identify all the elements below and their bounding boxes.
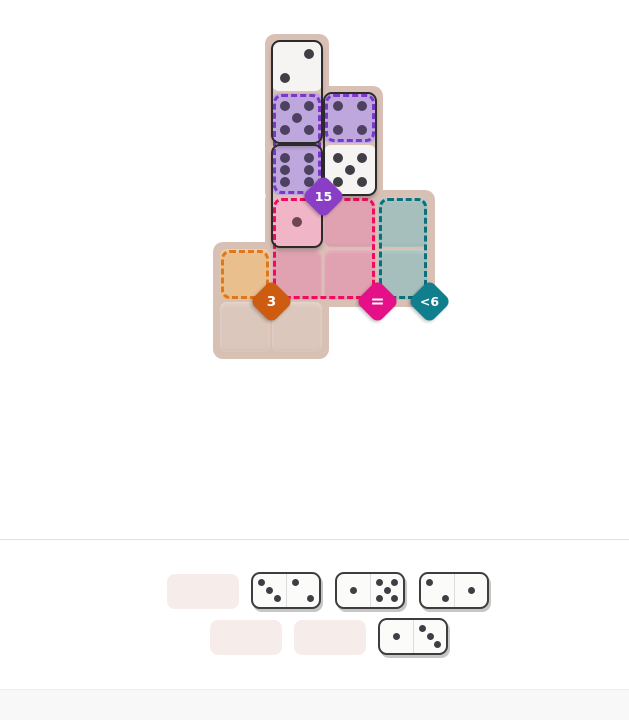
pip [376, 595, 383, 602]
domino-tray [0, 0, 629, 720]
domino-half [337, 574, 370, 607]
tray-domino[interactable] [335, 572, 405, 609]
domino-half [370, 574, 404, 607]
domino-half [380, 620, 413, 653]
pip [442, 595, 449, 602]
footer-bar [0, 689, 629, 720]
pip [384, 587, 391, 594]
pip [393, 633, 400, 640]
tray-slot [294, 620, 366, 655]
tray-domino[interactable] [251, 572, 321, 609]
pip [468, 587, 475, 594]
domino-half [413, 620, 447, 653]
domino-half [253, 574, 286, 607]
tray-slot [210, 620, 282, 655]
domino-half [454, 574, 488, 607]
pip [258, 579, 265, 586]
pip [350, 587, 357, 594]
pip [419, 625, 426, 632]
domino-half [286, 574, 320, 607]
pip [376, 579, 383, 586]
pip [426, 579, 433, 586]
game-screen: 153=<6 [0, 0, 629, 720]
pip [274, 595, 281, 602]
pip [292, 579, 299, 586]
pip [434, 641, 441, 648]
domino-half [421, 574, 454, 607]
tray-slot [167, 574, 239, 609]
pip [266, 587, 273, 594]
pip [307, 595, 314, 602]
tray-domino[interactable] [378, 618, 448, 655]
tray-domino[interactable] [419, 572, 489, 609]
pip [391, 579, 398, 586]
pip [391, 595, 398, 602]
pip [427, 633, 434, 640]
